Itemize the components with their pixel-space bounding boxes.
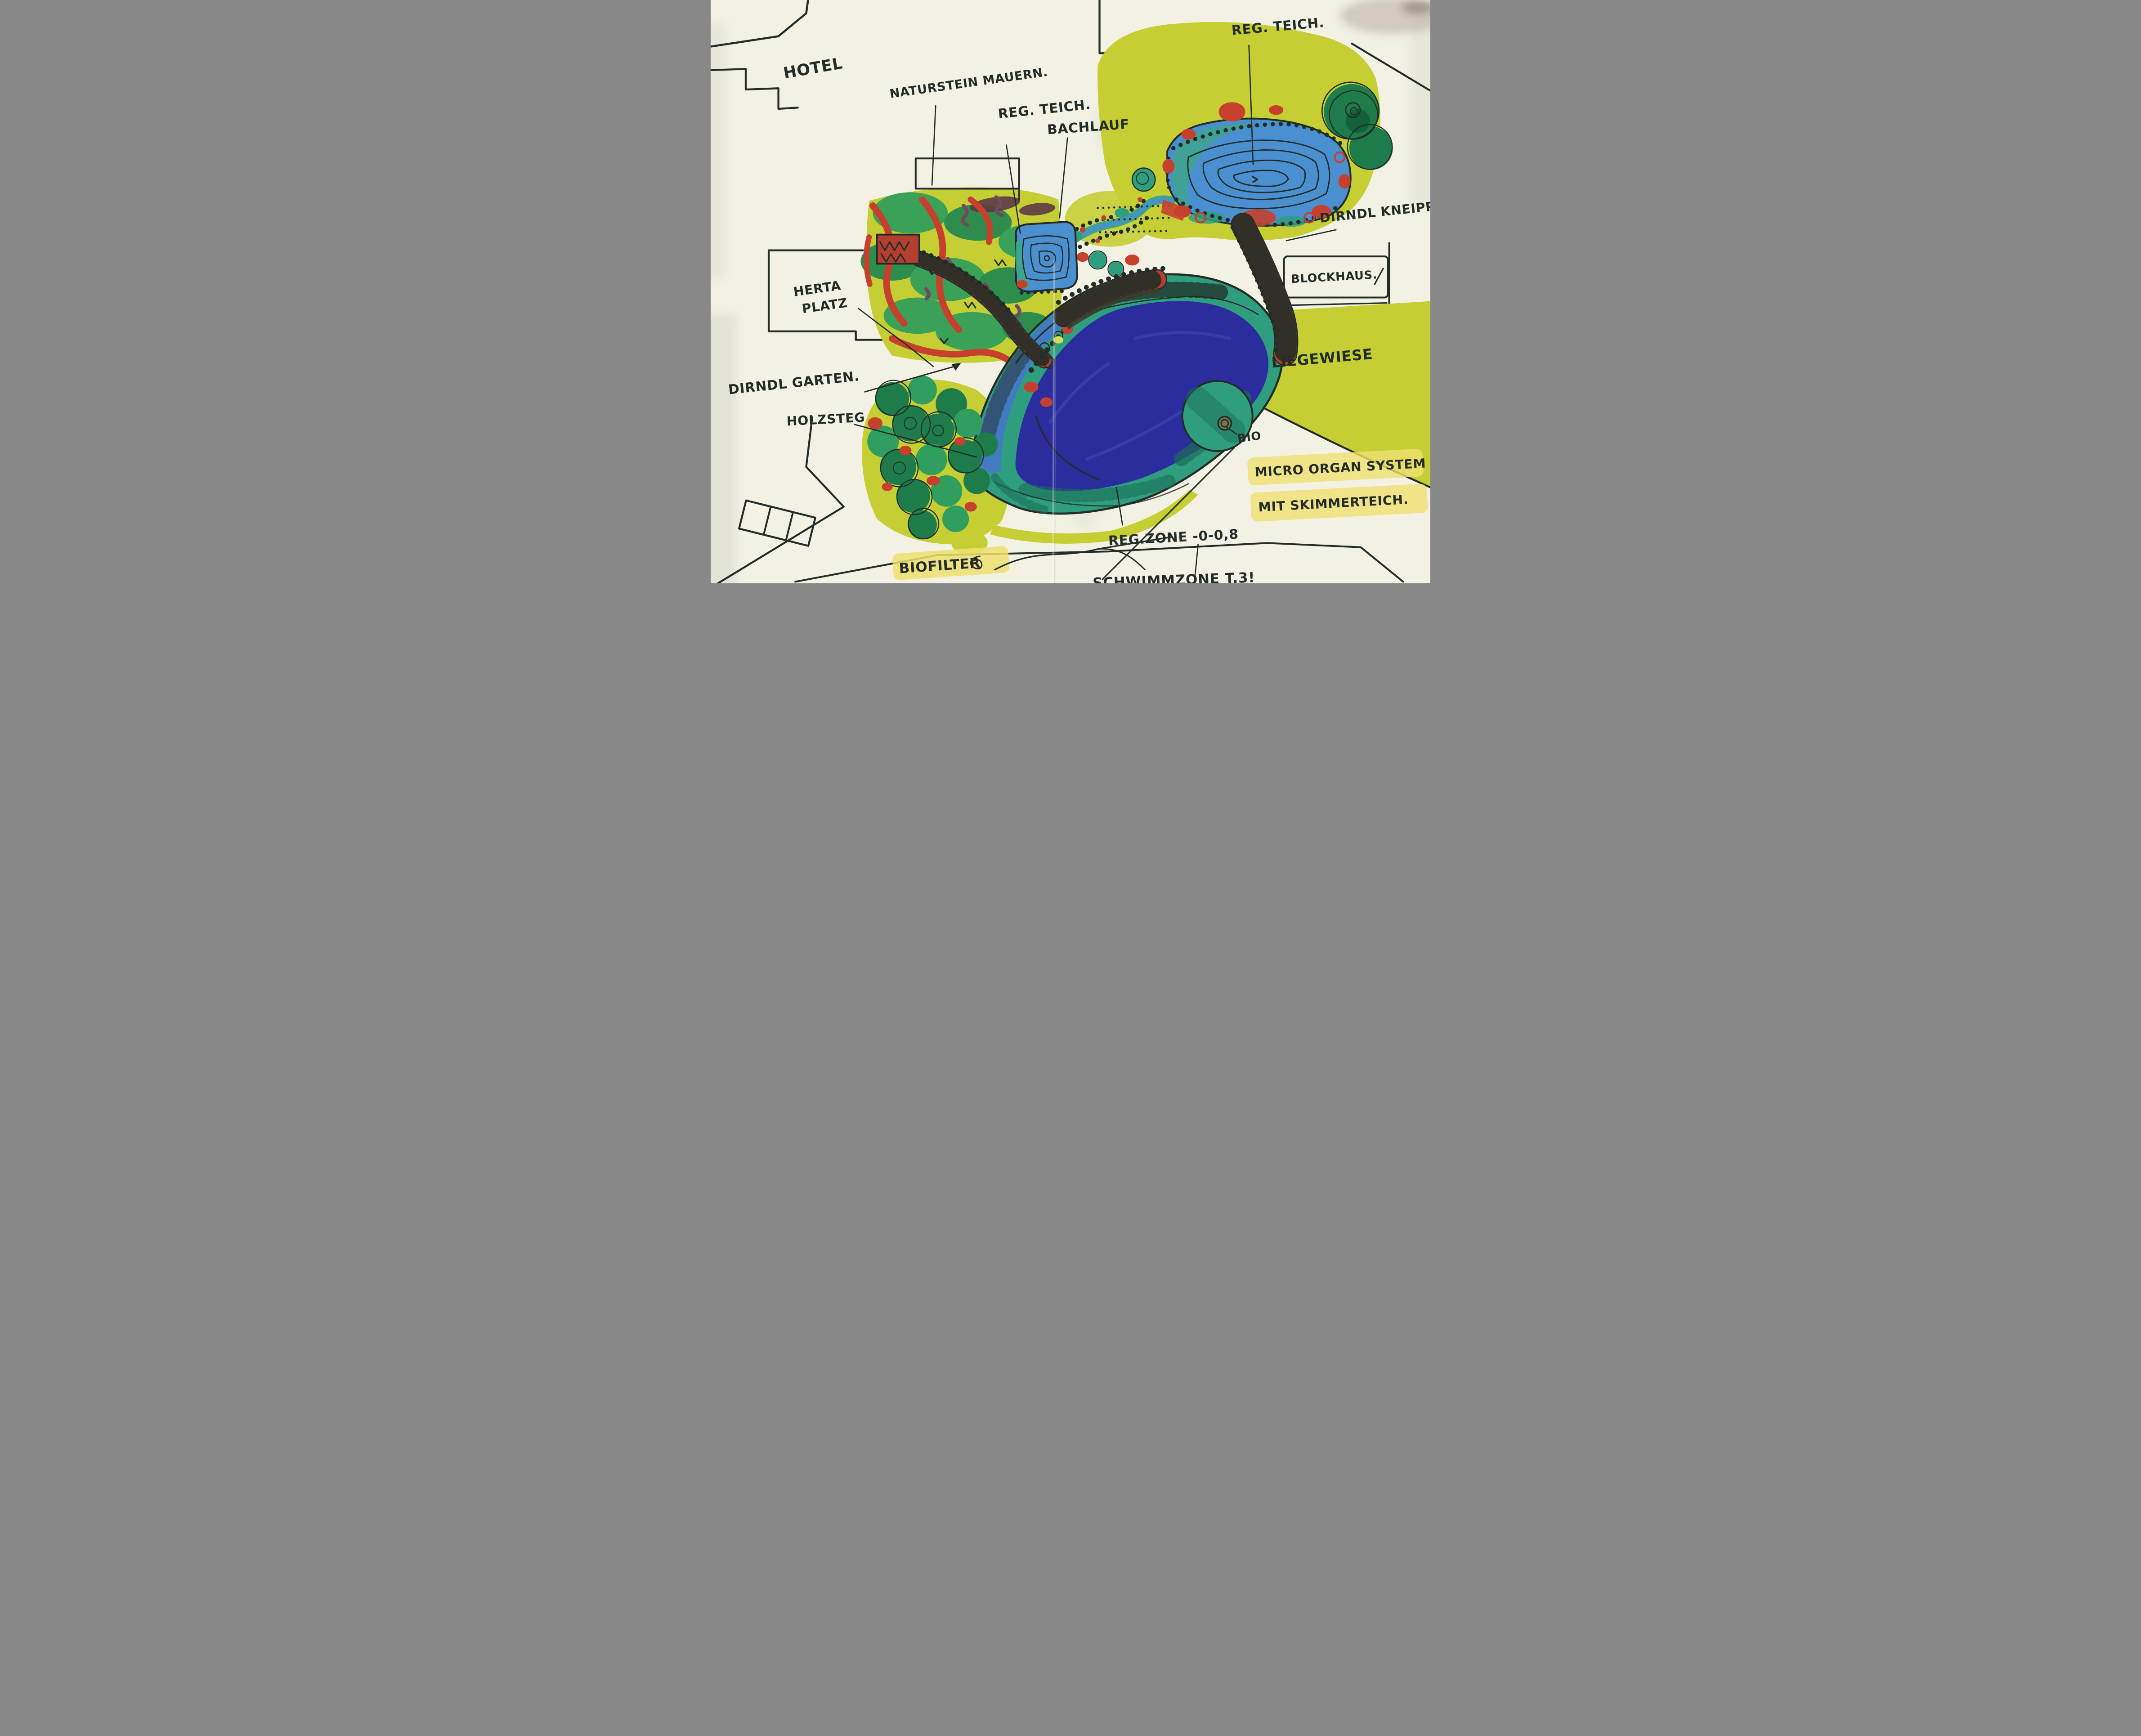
left-pond-reg-teich [1015, 222, 1077, 292]
scanned-landscape-sketch: HOTEL NATURSTEIN MAUERN. REG. TEICH. BAC… [711, 0, 1430, 583]
garden-plan-canvas: HOTEL NATURSTEIN MAUERN. REG. TEICH. BAC… [711, 0, 1430, 583]
